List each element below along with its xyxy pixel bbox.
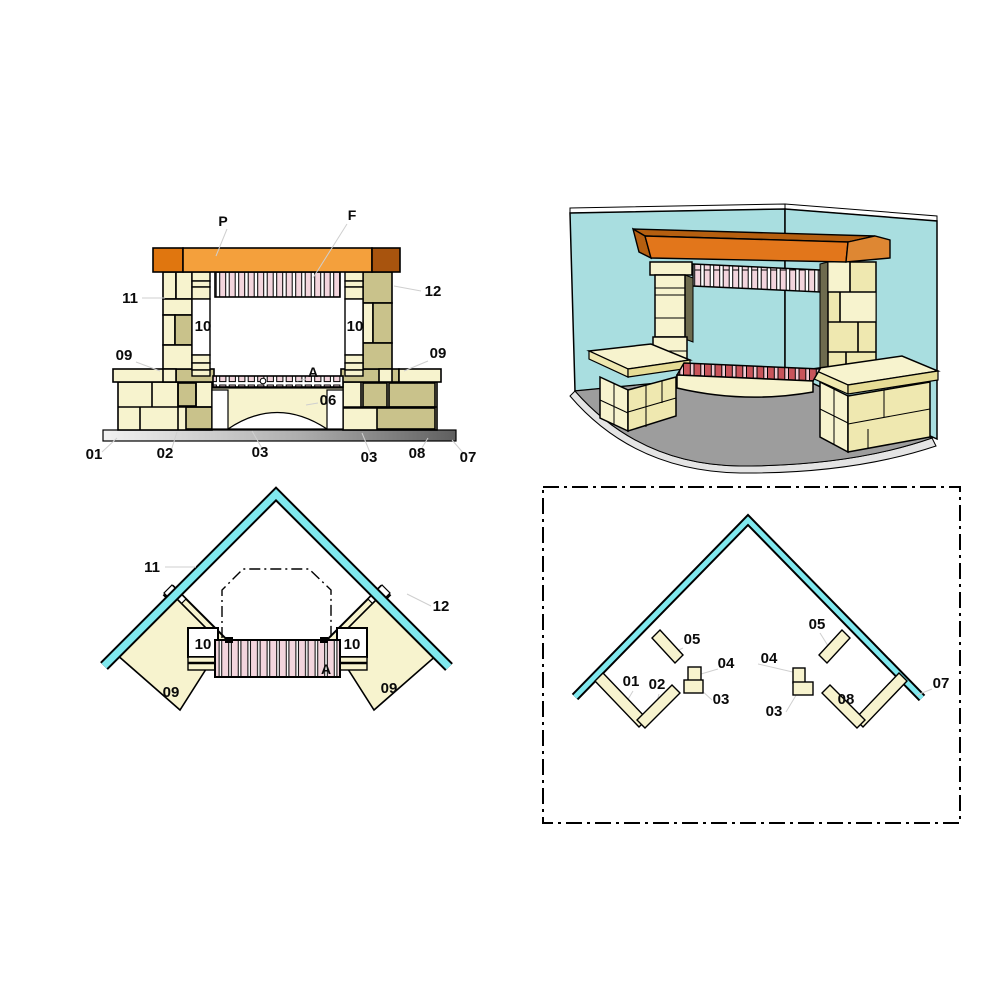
label-elev-12: 12 — [425, 283, 442, 300]
label-elev-11: 11 — [122, 290, 138, 307]
label-plan-12: 12 — [433, 598, 450, 615]
label-found-05-right: 05 — [809, 616, 826, 633]
footing-03-right — [793, 682, 813, 695]
hood-outline — [222, 569, 331, 638]
brick-frieze — [215, 272, 340, 297]
label-elev-01: 01 — [86, 446, 103, 463]
fireplace-diagram: P F 11 12 10 10 09 09 A 06 01 02 03 03 0… — [0, 0, 1000, 1000]
label-elev-03-right: 03 — [361, 449, 378, 466]
label-elev-03-left: 03 — [252, 444, 269, 461]
front-elevation-view: P F 11 12 10 10 09 09 A 06 01 02 03 03 0… — [86, 207, 477, 466]
label-elev-10-left: 10 — [195, 318, 212, 335]
label-plan-09-left: 09 — [163, 684, 180, 701]
label-found-08: 08 — [838, 691, 855, 708]
label-found-04-right: 04 — [761, 650, 778, 667]
label-elev-07: 07 — [460, 449, 477, 466]
label-found-03-right: 03 — [766, 703, 783, 720]
label-elev-08: 08 — [409, 445, 426, 462]
label-elev-a: A — [308, 364, 318, 380]
corner-walls-foundation — [575, 520, 922, 698]
footing-03-left — [684, 680, 703, 693]
label-found-07: 07 — [933, 675, 950, 692]
label-found-04-left: 04 — [718, 655, 735, 672]
right-bench-3d — [812, 356, 938, 452]
label-elev-p: P — [218, 213, 227, 229]
footing-strips — [595, 630, 907, 728]
diagram-canvas: P F 11 12 10 10 09 09 A 06 01 02 03 03 0… — [0, 0, 1000, 1000]
label-found-01: 01 — [623, 673, 640, 690]
mantel-beam — [153, 248, 400, 272]
hearth-dot — [260, 378, 266, 384]
floor-plate — [103, 430, 456, 441]
label-elev-09-left: 09 — [116, 347, 133, 364]
label-plan-a: A — [321, 661, 331, 677]
label-found-05-left: 05 — [684, 631, 701, 648]
label-plan-11: 11 — [144, 559, 160, 576]
foundation-labels: 05 05 04 04 01 02 03 03 08 07 — [623, 616, 950, 720]
footing-05-left — [652, 630, 683, 663]
label-elev-10-right: 10 — [347, 318, 364, 335]
label-elev-09-right: 09 — [430, 345, 447, 362]
label-elev-06: 06 — [320, 392, 337, 409]
hearth-strip — [213, 376, 343, 387]
label-found-02: 02 — [649, 676, 666, 693]
hearth-tick-left — [225, 637, 233, 643]
footing-04-right — [793, 668, 805, 683]
isometric-view — [570, 204, 938, 473]
label-found-03-left: 03 — [713, 691, 730, 708]
foundation-plan-view: 05 05 04 04 01 02 03 03 08 07 — [543, 487, 960, 823]
foundation-boundary — [543, 487, 960, 823]
label-plan-10-right: 10 — [344, 636, 361, 653]
footing-05-right — [819, 630, 850, 663]
plan-view: 11 12 10 10 A 09 09 — [104, 494, 449, 710]
label-elev-02: 02 — [157, 445, 174, 462]
hearth-tick-right — [320, 637, 328, 643]
hearth-3d — [677, 363, 820, 397]
label-elev-f: F — [348, 207, 357, 223]
label-plan-10-left: 10 — [195, 636, 212, 653]
label-plan-09-right: 09 — [381, 680, 398, 697]
